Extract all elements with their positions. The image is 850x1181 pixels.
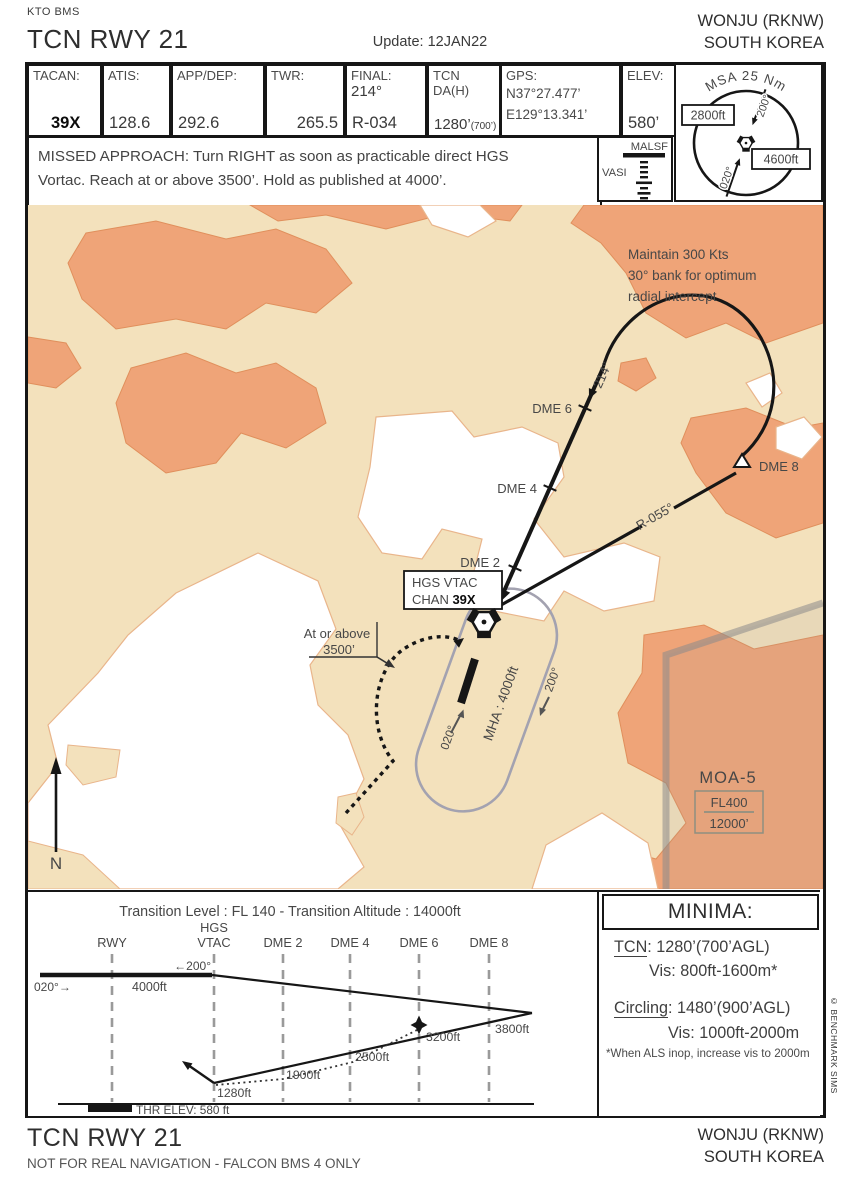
profile-column-labels: RWY HGS VTAC DME 2 DME 4 DME 6 DME 8 [97, 920, 508, 950]
profile-diagram: Transition Level : FL 140 - Transition A… [28, 892, 596, 1115]
col-dme6: DME 6 [399, 935, 438, 950]
elev-value: 580’ [628, 114, 659, 133]
profile-missed-arrow [182, 1061, 193, 1070]
profile-altitude-labels: 3800ft 3200ft 2500ft 1900ft 1280ft [217, 1022, 530, 1100]
gps-label: GPS: [506, 68, 615, 83]
dme4-label: DME 4 [497, 481, 537, 496]
profile-missed-climb [188, 1065, 214, 1083]
gps-lat: N37°27.477’ [506, 86, 615, 101]
north-label: N [50, 854, 62, 873]
atis-label: ATIS: [108, 68, 140, 83]
col-hgs1: HGS [200, 920, 228, 935]
lighting-box: MALSF VASI [597, 136, 673, 202]
minima-circling-vis: Vis: 1000ft-2000m [668, 1024, 799, 1043]
da-value: 1280’ [434, 116, 471, 133]
speed-note-line1: Maintain 300 Kts [628, 247, 729, 262]
malsf-label: MALSF [631, 141, 668, 153]
appdep-value: 292.6 [178, 114, 219, 133]
vasi-label: VASI [602, 167, 627, 179]
publisher-label: KTO BMS [27, 6, 80, 18]
tacan-label: TACAN: [33, 68, 80, 83]
airport-country: SOUTH KOREA [698, 32, 824, 54]
navaid-name: HGS VTAC [412, 575, 478, 590]
da-value-agl: (700’) [471, 121, 497, 132]
dme2-label: DME 2 [460, 555, 500, 570]
col-hgs2: VTAC [197, 935, 230, 950]
altitude-note-line2: 3500’ [323, 642, 355, 657]
footer-title: TCN RWY 21 [27, 1124, 183, 1153]
copyright-label: © BENCHMARK SIMS [829, 996, 839, 1094]
minima-tcn-value: : 1280’(700’AGL) [647, 938, 769, 956]
msa-east-alt: 4600ft [764, 153, 799, 167]
minima-title: MINIMA: [602, 894, 819, 930]
elev-label: ELEV: [627, 68, 675, 83]
dme6-label: DME 6 [532, 401, 572, 416]
navaid-box: HGS VTAC CHAN 39X [404, 571, 502, 609]
speed-note-line2: 30° bank for optimum [628, 268, 756, 283]
atis-cell: ATIS: 128.6 [102, 64, 171, 137]
profile-view-box: Transition Level : FL 140 - Transition A… [28, 890, 599, 1116]
msa-arrow-north [752, 118, 758, 126]
chart-title: TCN RWY 21 [27, 24, 189, 55]
malsf-bar-icon [623, 153, 665, 158]
profile-alt-1280: 1280ft [217, 1086, 252, 1100]
footer-airport-name: WONJU (RKNW) [698, 1124, 824, 1146]
msa-arrow-south [735, 158, 741, 166]
airport-name: WONJU (RKNW) [698, 10, 824, 32]
profile-alt-2500: 2500ft [355, 1050, 390, 1064]
minima-als-note: *When ALS inop, increase vis to 2000m [606, 1047, 810, 1060]
col-dme4: DME 4 [330, 935, 369, 950]
profile-descent-leg [214, 1013, 532, 1083]
profile-inbound-label: 020°→ [34, 980, 71, 994]
missed-approach-box: MISSED APPROACH: Turn RIGHT as soon as p… [27, 136, 602, 207]
footer-airport-country: SOUTH KOREA [698, 1146, 824, 1168]
gps-cell: GPS: N37°27.477’ E129°13.341’ [500, 64, 621, 137]
col-dme2: DME 2 [263, 935, 302, 950]
final-course: 214° [351, 83, 421, 100]
tacan-value: 39X [51, 114, 80, 133]
appdep-label: APP/DEP: [177, 68, 237, 83]
altitude-note-line1: At or above [304, 626, 371, 641]
atis-value: 128.6 [109, 114, 150, 133]
final-label: FINAL: [351, 68, 421, 83]
navaid-chan-label: CHAN [412, 592, 452, 607]
final-cell: FINAL: 214° R-034 [345, 64, 427, 137]
msa-box: MSA 25 Nm 200° 020° 2800ft 4600ft [674, 63, 823, 202]
approach-chart-page: KTO BMS TCN RWY 21 Update: 12JAN22 WONJU… [0, 0, 850, 1181]
appdep-cell: APP/DEP: 292.6 [171, 64, 265, 137]
gps-lon: E129°13.341’ [506, 107, 615, 122]
tacan-cell: TACAN: 39X [27, 64, 102, 137]
profile-outbound-label: ←200° [174, 959, 211, 973]
minima-circling-value: : 1480’(900’AGL) [668, 999, 790, 1017]
minima-tcn-line: TCN: 1280’(700’AGL) [614, 938, 770, 957]
final-radial: R-034 [352, 114, 397, 133]
svg-text:CHAN 39X: CHAN 39X [412, 592, 476, 607]
minima-circling-line: Circling: 1480’(900’AGL) [614, 999, 790, 1018]
missed-approach-line1: MISSED APPROACH: Turn RIGHT as soon as p… [38, 145, 591, 169]
da-label: TCN DA(H) [433, 68, 495, 98]
navaid-chan-value: 39X [452, 592, 475, 607]
minima-tcn-vis: Vis: 800ft-1600m* [649, 962, 777, 981]
transition-level-label: Transition Level : FL 140 - Transition A… [119, 904, 460, 920]
twr-label: TWR: [271, 68, 304, 83]
dme8-label: DME 8 [759, 459, 799, 474]
profile-outbound-leg [212, 975, 532, 1013]
da-cell: TCN DA(H) 1280’(700’) [427, 64, 501, 137]
col-dme8: DME 8 [469, 935, 508, 950]
profile-alt-1900: 1900ft [286, 1068, 321, 1082]
approach-lighting-diagram: MALSF VASI [599, 138, 671, 200]
msa-diagram: MSA 25 Nm 200° 020° 2800ft 4600ft [676, 65, 821, 200]
moa-upper-limit: FL400 [711, 795, 748, 810]
threshold-elevation-label: THR ELEV: 580 ft [136, 1103, 230, 1115]
minima-circling-label: Circling [614, 999, 668, 1018]
moa-lower-limit: 12000’ [709, 816, 748, 831]
twr-cell: TWR: 265.5 [265, 64, 345, 137]
elev-cell: ELEV: 580’ [621, 64, 681, 137]
update-date: Update: 12JAN22 [300, 34, 560, 50]
malsf-ladder-icon [636, 161, 652, 199]
msa-west-alt: 2800ft [691, 109, 726, 123]
msa-radial-200: 200° [755, 93, 774, 118]
airport-location-header: WONJU (RKNW) SOUTH KOREA [698, 10, 824, 54]
profile-alt-3800: 3800ft [495, 1022, 530, 1036]
profile-runway-bar [88, 1104, 132, 1112]
profile-alt-3200: 3200ft [426, 1030, 461, 1044]
profile-alt-4000: 4000ft [132, 980, 167, 994]
plan-view-map: MOA-5 FL400 12000’ MHA : 4000ft 020° 200… [28, 205, 823, 889]
faf-cross-icon [411, 1016, 428, 1035]
footer-disclaimer: NOT FOR REAL NAVIGATION - FALCON BMS 4 O… [27, 1156, 361, 1171]
col-rwy: RWY [97, 935, 127, 950]
twr-value: 265.5 [297, 114, 338, 133]
speed-note-line3: radial intercept [628, 289, 717, 304]
minima-tcn-label: TCN [614, 938, 647, 957]
moa-name: MOA-5 [699, 769, 756, 787]
airport-location-footer: WONJU (RKNW) SOUTH KOREA [698, 1124, 824, 1168]
missed-approach-line2: Vortac. Reach at or above 3500’. Hold as… [38, 169, 591, 193]
